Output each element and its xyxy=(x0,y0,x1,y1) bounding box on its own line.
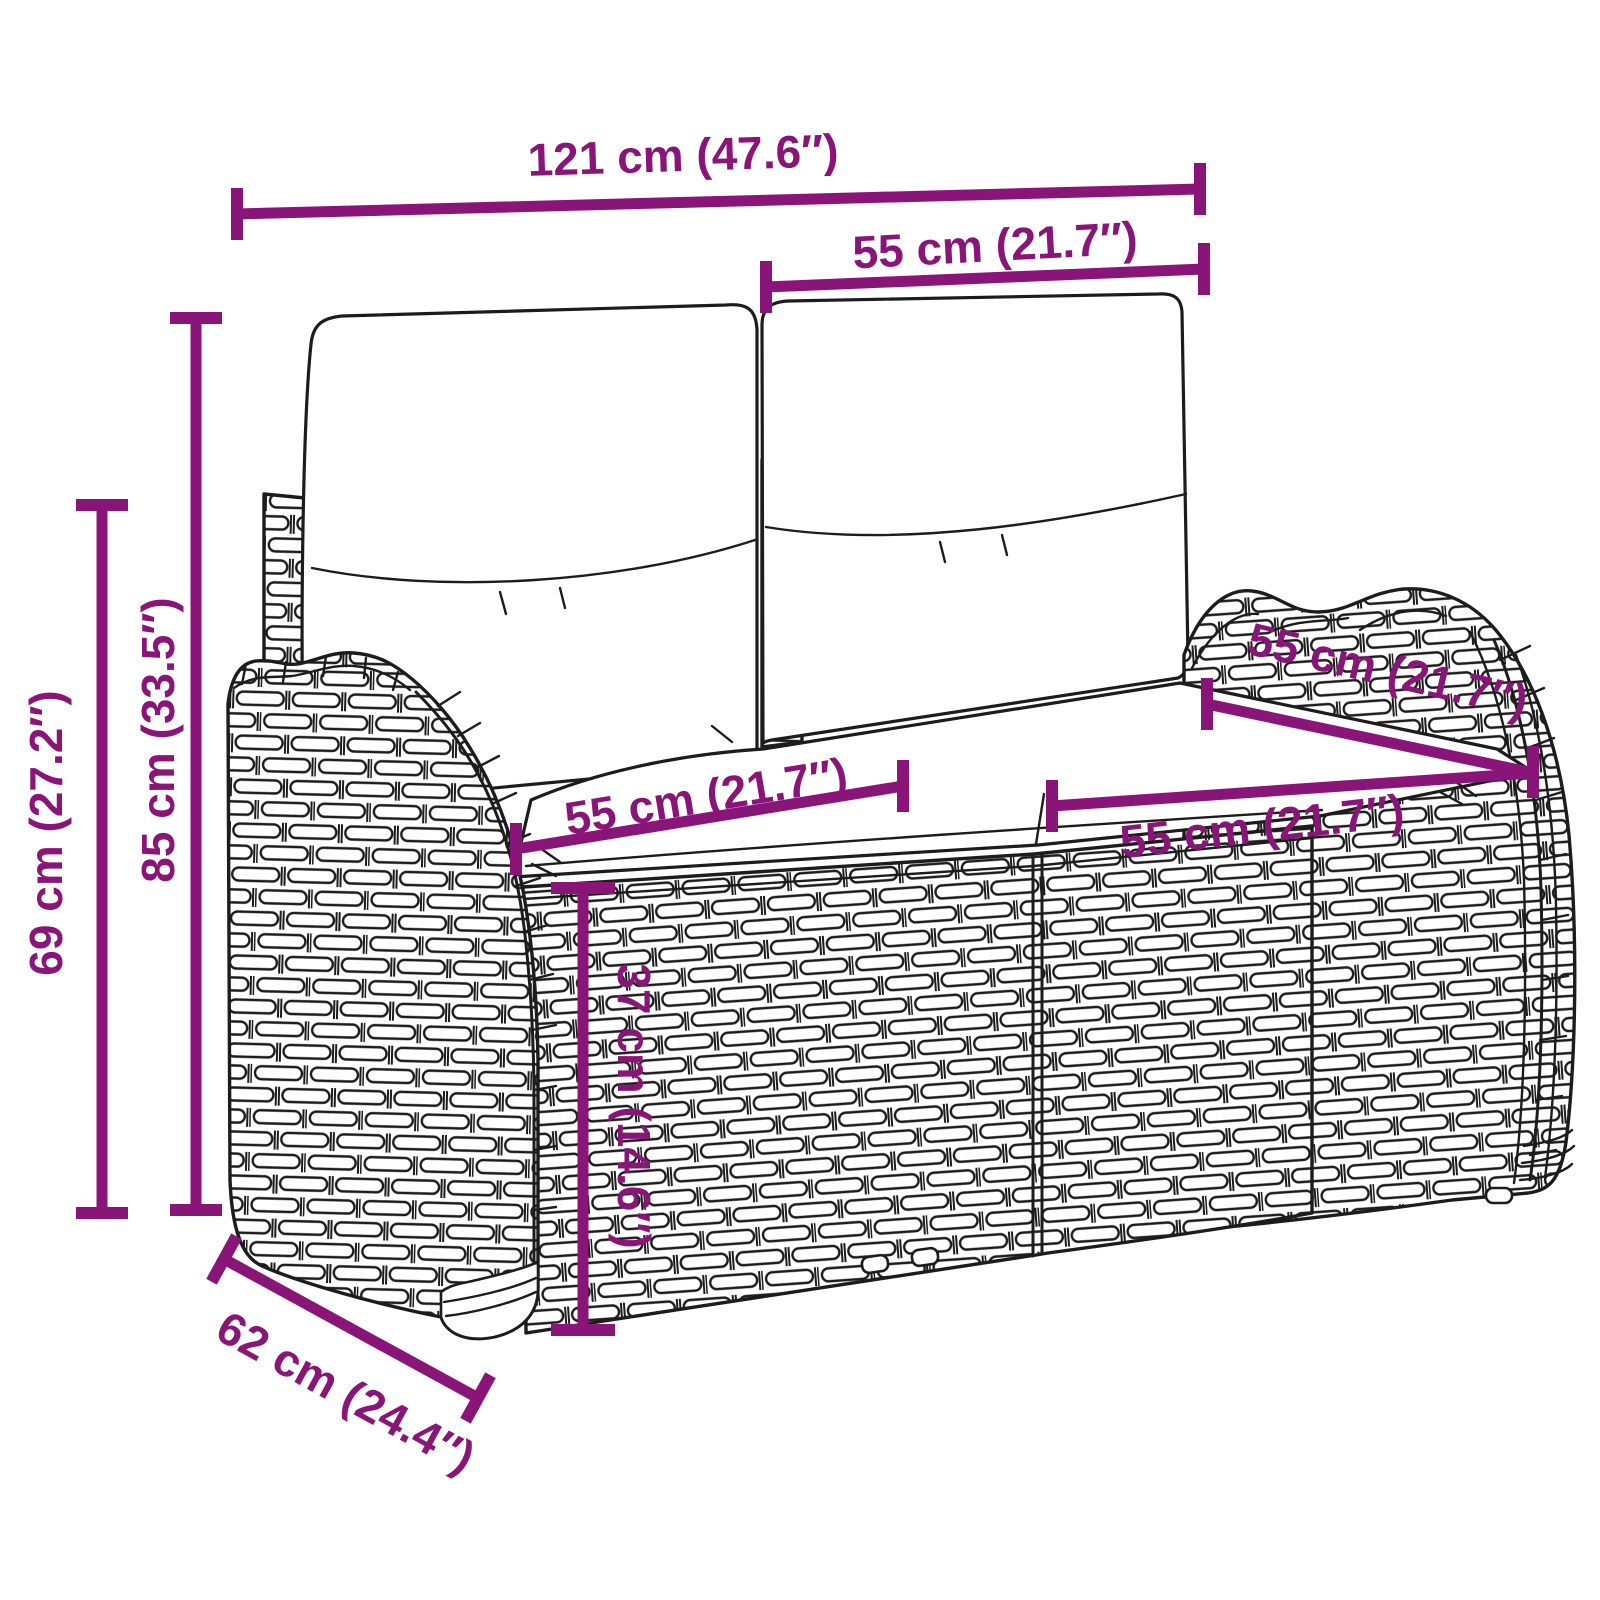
dimension-diagram: 121 cm (47.6″) 55 cm (21.7″) 85 cm (33.5… xyxy=(0,0,1600,1600)
front-foot-2 xyxy=(911,1247,939,1266)
product-diagram-canvas: 121 cm (47.6″) 55 cm (21.7″) 85 cm (33.5… xyxy=(0,0,1600,1600)
dim-overall-height-label: 85 cm (33.5″) xyxy=(132,597,184,882)
front-foot-1 xyxy=(861,1254,889,1273)
dim-arm-height: 69 cm (27.2″) xyxy=(20,505,128,1213)
dim-overall-width-label: 121 cm (47.6″) xyxy=(527,124,839,186)
dim-overall-height: 85 cm (33.5″) xyxy=(132,318,222,1210)
right-foot xyxy=(1486,1188,1512,1203)
dim-seat-height-label: 37 cm (14.6″) xyxy=(608,963,660,1248)
dim-arm-height-label: 69 cm (27.2″) xyxy=(20,690,72,975)
back-cushion-right xyxy=(762,294,1188,743)
